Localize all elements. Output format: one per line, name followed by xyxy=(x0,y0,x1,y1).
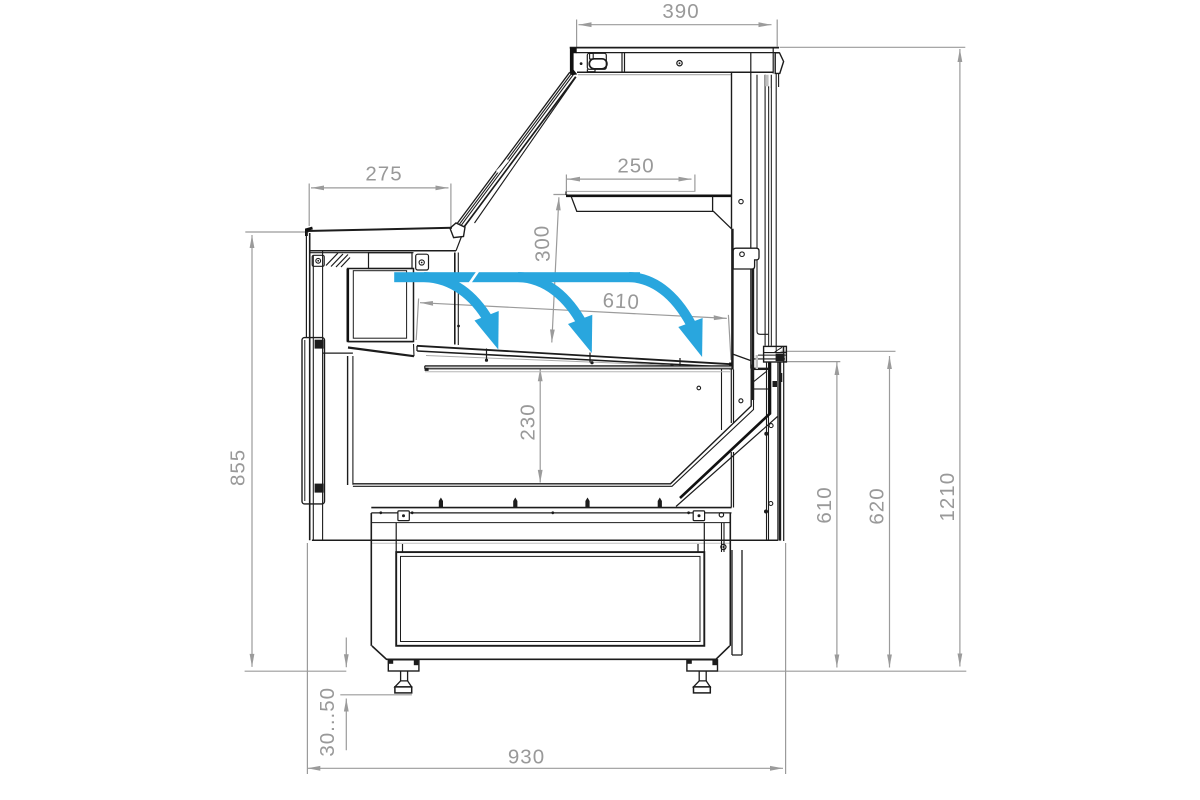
svg-text:230: 230 xyxy=(517,403,540,440)
svg-text:300: 300 xyxy=(530,224,555,262)
svg-text:30...50: 30...50 xyxy=(316,687,339,757)
svg-text:1210: 1210 xyxy=(936,472,959,522)
svg-text:930: 930 xyxy=(508,746,545,769)
svg-text:250: 250 xyxy=(617,155,654,178)
svg-text:390: 390 xyxy=(662,0,699,23)
svg-text:275: 275 xyxy=(365,163,402,186)
svg-text:610: 610 xyxy=(813,486,836,523)
svg-text:610: 610 xyxy=(602,289,640,314)
svg-text:855: 855 xyxy=(227,449,250,486)
svg-text:620: 620 xyxy=(866,487,889,524)
